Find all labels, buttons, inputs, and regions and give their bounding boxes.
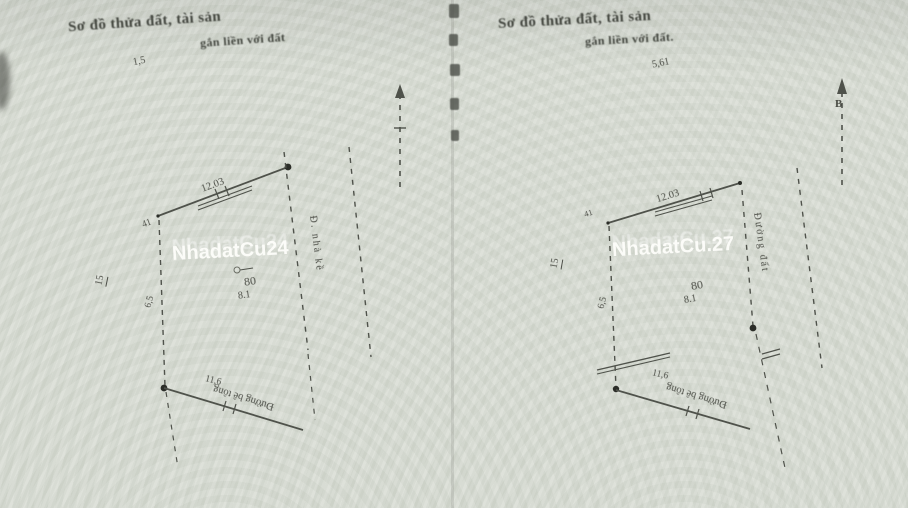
plot-number: 80 bbox=[690, 277, 704, 294]
north-arrow-icon bbox=[837, 78, 847, 185]
road-far-edge bbox=[762, 354, 780, 359]
plot-edge-left bbox=[159, 220, 165, 386]
road-far-edge bbox=[762, 349, 780, 354]
plot-edge-right bbox=[742, 190, 753, 326]
north-arrow-icon bbox=[394, 84, 406, 190]
north-label: B bbox=[835, 98, 842, 110]
plot-area: 8.1 bbox=[683, 293, 697, 306]
center-mark bbox=[234, 267, 253, 273]
path-far-edge bbox=[349, 147, 371, 357]
plot-linework bbox=[0, 0, 908, 508]
road-far-edge bbox=[597, 353, 670, 370]
path-far-edge bbox=[797, 168, 822, 368]
corner-point bbox=[606, 221, 609, 224]
boundary-continuation bbox=[308, 354, 315, 420]
corner-point bbox=[738, 181, 742, 185]
scanned-cadastral-photo: Sơ đồ thửa đất, tài sản gắn liền với đất… bbox=[0, 0, 908, 508]
plot-area: 8.1 bbox=[237, 289, 251, 302]
left-plot-sketch bbox=[156, 84, 406, 468]
plot-edge-top bbox=[158, 167, 288, 216]
boundary-continuation bbox=[166, 392, 178, 468]
right-plot-sketch bbox=[597, 78, 847, 468]
corner-point bbox=[750, 325, 757, 332]
plot-number: 80 bbox=[243, 273, 257, 290]
corner-point bbox=[156, 214, 159, 217]
boundary-continuation bbox=[756, 334, 785, 468]
adjacent-parcel-number: 15 bbox=[549, 257, 564, 269]
